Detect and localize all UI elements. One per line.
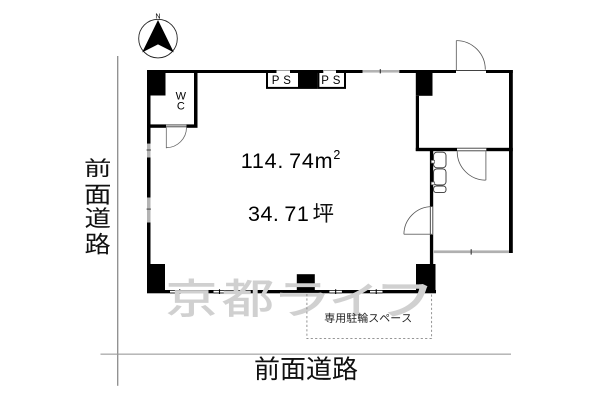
- svg-text:C: C: [177, 100, 185, 112]
- svg-text:P S: P S: [321, 75, 341, 87]
- svg-text:P S: P S: [272, 75, 292, 87]
- svg-text:34.71: 34.71: [248, 202, 309, 226]
- svg-text:114.74m2: 114.74m2: [241, 148, 341, 173]
- svg-text:N: N: [155, 11, 160, 20]
